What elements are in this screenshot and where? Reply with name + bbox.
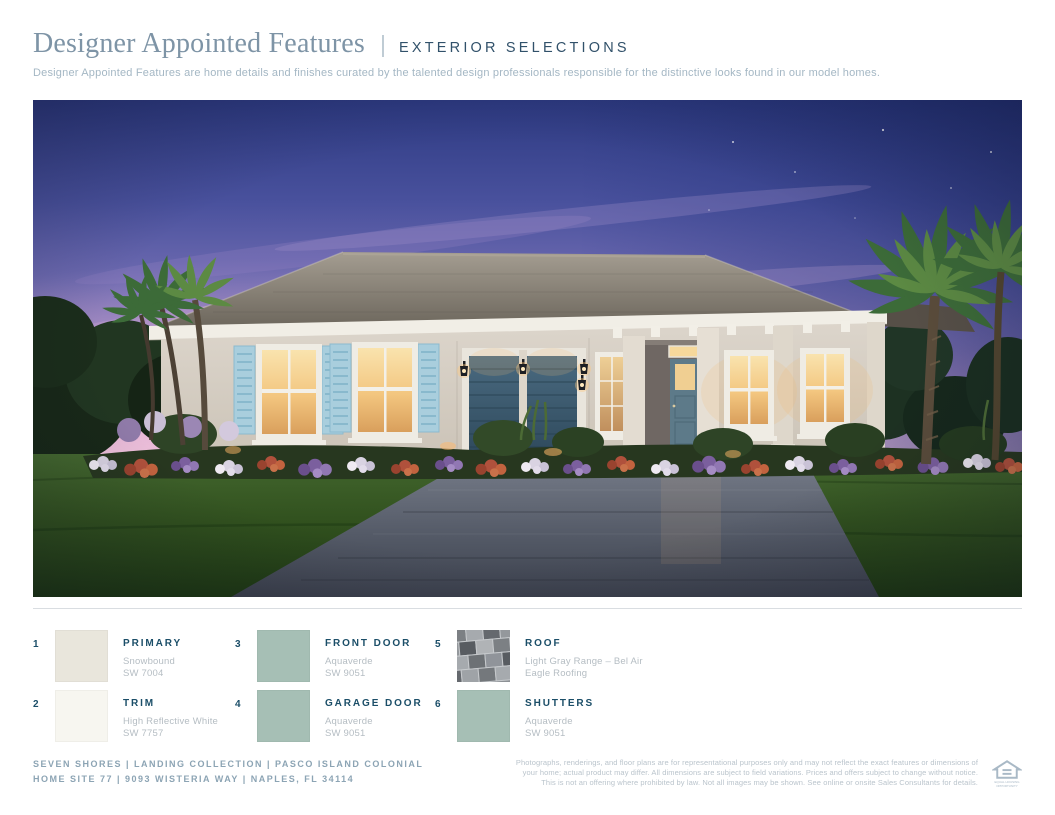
house-rendering-image xyxy=(33,100,1022,597)
item-label: TRIM xyxy=(123,698,218,709)
designer-features-sheet: Designer Appointed Features | EXTERIOR S… xyxy=(0,0,1055,815)
item-value: Aquaverde SW 9051 xyxy=(325,656,411,680)
item-number: 1 xyxy=(33,630,55,650)
item-value: Aquaverde SW 9051 xyxy=(525,716,594,740)
divider-line xyxy=(33,608,1022,609)
item-label: SHUTTERS xyxy=(525,698,594,709)
color-swatch-garage-door xyxy=(257,690,310,742)
page-subtitle-tag: EXTERIOR SELECTIONS xyxy=(399,40,630,56)
footer: SEVEN SHORES | LANDING COLLECTION | PASC… xyxy=(33,757,1022,802)
page-title: Designer Appointed Features xyxy=(33,28,365,60)
selection-item-primary: 1 PRIMARY Snowbound SW 7004 xyxy=(33,630,235,682)
roof-swatch-image xyxy=(457,630,510,682)
color-swatch-primary xyxy=(55,630,108,682)
item-value: Aquaverde SW 9051 xyxy=(325,716,423,740)
item-value: High Reflective White SW 7757 xyxy=(123,716,218,740)
item-value: Snowbound SW 7004 xyxy=(123,656,182,680)
item-number: 6 xyxy=(435,690,457,710)
title-separator: | xyxy=(380,31,386,58)
item-number: 2 xyxy=(33,690,55,710)
page-description: Designer Appointed Features are home det… xyxy=(33,67,1022,79)
disclaimer: Photographs, renderings, and floor plans… xyxy=(498,758,978,788)
item-label: ROOF xyxy=(525,638,643,649)
color-swatch-front-door xyxy=(257,630,310,682)
item-label: FRONT DOOR xyxy=(325,638,411,649)
item-number: 3 xyxy=(235,630,257,650)
equal-housing-opportunity-icon: EQUAL HOUSING OPPORTUNITY xyxy=(992,759,1022,789)
selections-grid: 1 PRIMARY Snowbound SW 7004 2 TRIM High … xyxy=(33,630,1022,742)
header: Designer Appointed Features | EXTERIOR S… xyxy=(33,28,1022,79)
selection-item-shutters: 6 SHUTTERS Aquaverde SW 9051 xyxy=(435,690,1022,742)
selection-item-front-door: 3 FRONT DOOR Aquaverde SW 9051 xyxy=(235,630,435,682)
item-label: PRIMARY xyxy=(123,638,182,649)
item-label: GARAGE DOOR xyxy=(325,698,423,709)
item-value: Light Gray Range – Bel Air Eagle Roofing xyxy=(525,656,643,680)
roof-tile-photo xyxy=(457,630,510,682)
color-swatch-trim xyxy=(55,690,108,742)
title-row: Designer Appointed Features | EXTERIOR S… xyxy=(33,28,1022,60)
selection-item-garage-door: 4 GARAGE DOOR Aquaverde SW 9051 xyxy=(235,690,435,742)
color-swatch-shutters xyxy=(457,690,510,742)
svg-text:OPPORTUNITY: OPPORTUNITY xyxy=(996,784,1018,788)
house-rendering-scene xyxy=(33,100,1022,597)
selection-item-roof: 5 ROOF Light Gray Range – Bel Air Eagle xyxy=(435,630,1022,682)
item-number: 4 xyxy=(235,690,257,710)
item-number: 5 xyxy=(435,630,457,650)
selection-item-trim: 2 TRIM High Reflective White SW 7757 xyxy=(33,690,235,742)
